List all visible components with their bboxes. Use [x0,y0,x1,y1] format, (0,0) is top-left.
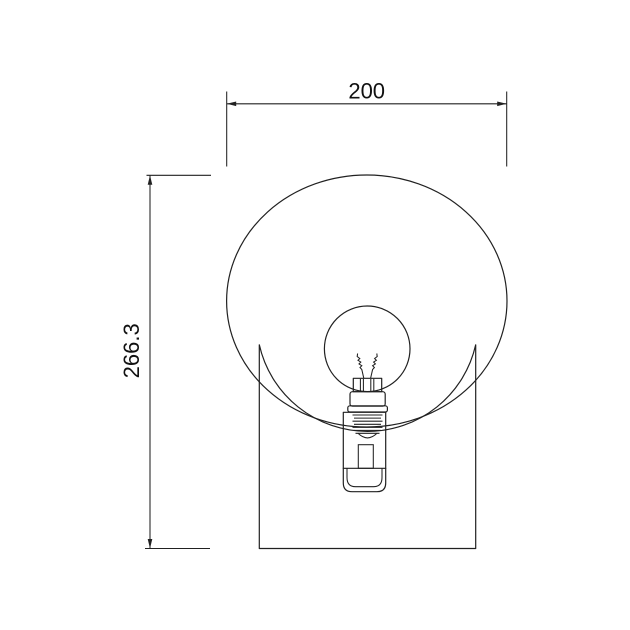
lamp-technical-drawing: 200 266.3 [0,0,630,630]
width-dimension: 200 [227,79,507,167]
holder-slot [358,445,373,469]
socket-body [350,392,385,407]
holder-cup-inner-outline [347,468,382,486]
screw-thread [353,415,383,433]
height-dimension: 266.3 [119,175,211,548]
height-dimension-label: 266.3 [119,323,144,378]
wall-bracket-outline [259,345,475,549]
width-dimension-label: 200 [348,79,385,104]
width-arrow-right [497,102,507,107]
height-arrow-bottom [148,539,153,549]
technical-drawing-canvas: 200 266.3 [0,0,630,630]
bulb-neck-wires [360,379,373,391]
glass-globe-outline [227,175,507,427]
filament-wire-right [371,354,378,379]
bulb-neck [353,378,381,391]
lamp-figure [227,175,507,549]
width-arrow-left [227,102,237,107]
screw-tip-dome [358,433,377,438]
filament-wire-left [357,354,364,379]
height-arrow-top [148,175,153,185]
